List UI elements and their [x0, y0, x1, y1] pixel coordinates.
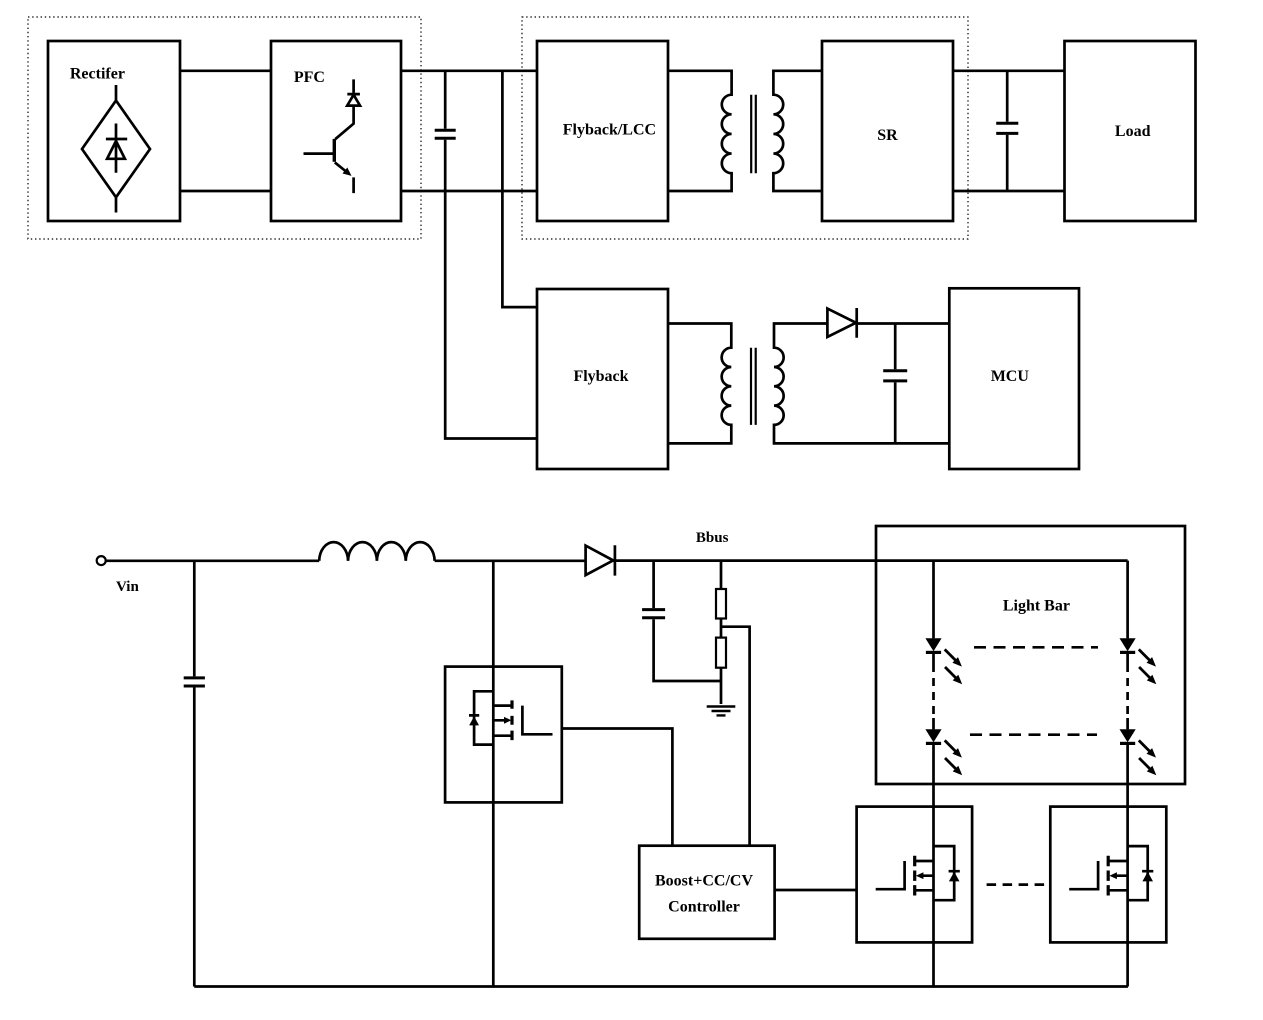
svg-text:SR: SR — [877, 127, 898, 144]
svg-text:Bbus: Bbus — [696, 530, 729, 546]
svg-text:Controller: Controller — [668, 898, 740, 915]
svg-text:Rectifer: Rectifer — [70, 65, 125, 82]
svg-text:Load: Load — [1115, 123, 1151, 140]
svg-text:MCU: MCU — [991, 368, 1030, 385]
svg-text:PFC: PFC — [294, 69, 325, 86]
svg-text:Flyback/LCC: Flyback/LCC — [563, 122, 656, 139]
svg-text:Flyback: Flyback — [573, 368, 628, 385]
svg-text:Vin: Vin — [116, 579, 139, 595]
svg-text:Boost+CC/CV: Boost+CC/CV — [655, 872, 753, 889]
svg-text:Light Bar: Light Bar — [1003, 597, 1070, 614]
